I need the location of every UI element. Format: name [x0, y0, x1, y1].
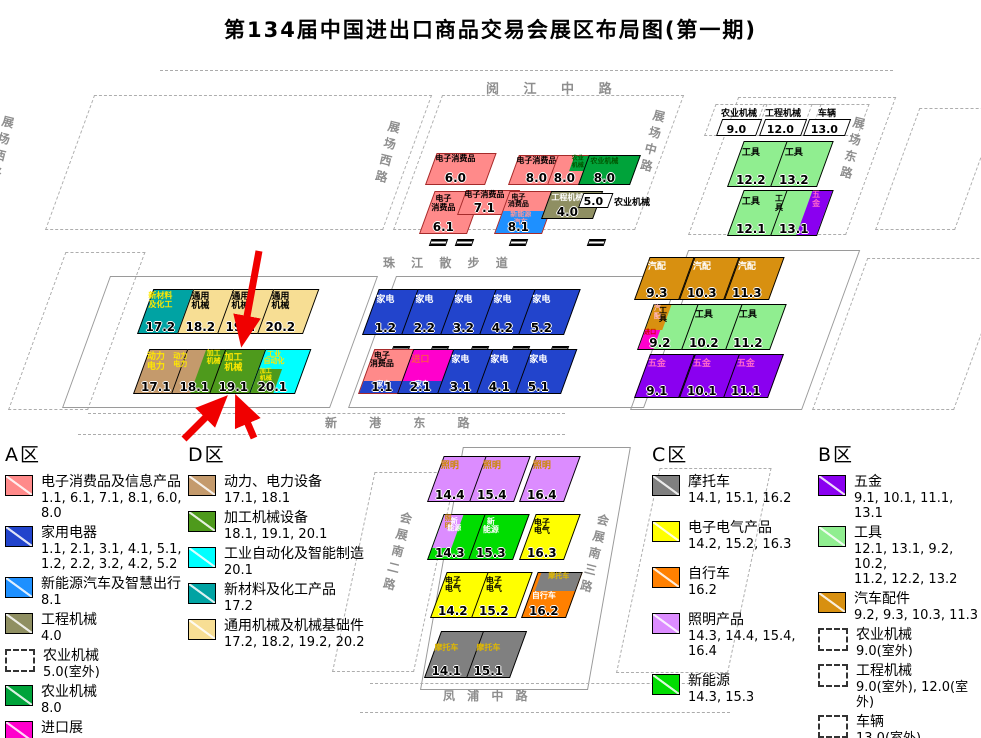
hall-content: 五金11.1 — [724, 355, 767, 397]
street-line — [78, 434, 565, 435]
hall-number: 19.2 — [218, 321, 262, 333]
hall-number: 13.1 — [771, 223, 816, 235]
legend-item-text: 车辆13.0(室外) — [856, 714, 921, 738]
hall-9.0: 9.0 — [716, 119, 762, 136]
hall-label: 汽配 — [635, 263, 678, 273]
hall-content: 照明15.4 — [470, 457, 513, 501]
hall-number: 14.2 — [431, 605, 474, 617]
hall-13.2: 工具13.2 — [770, 141, 834, 187]
hall-content: 摩托车15.1 — [467, 632, 509, 677]
legend-item-halls: 17.1, 18.1 — [224, 491, 322, 506]
hall-content: 通用 机械19.2 — [218, 290, 262, 333]
hall-label: 电子 电气 — [472, 577, 515, 594]
road-label: 珠 江 散 步 道 — [383, 254, 514, 271]
hall-label: 自行车 — [522, 592, 565, 601]
hall-number: 15.3 — [469, 547, 512, 559]
hall-5.0: 5.0 — [578, 193, 613, 208]
legend-item-text: 进口展2.1 — [41, 720, 83, 738]
legend-swatch — [188, 475, 216, 496]
hall-content: 电子 电气15.2 — [472, 573, 515, 617]
hall-number: 17.2 — [138, 321, 182, 333]
hall-label: 工具 — [728, 198, 773, 208]
legend-item-text: 农业机械9.0(室外) — [856, 627, 913, 659]
legend-section-C区: C区摩托车14.1, 15.1, 16.2电子电气产品14.2, 15.2, 1… — [652, 440, 817, 719]
hall-content: 12.0 — [760, 120, 800, 135]
hall-number: 5.1 — [516, 381, 560, 393]
hall-number: 6.0 — [426, 172, 484, 184]
hall-content: 8.0 — [548, 156, 580, 184]
hall-content: 新材料 及化工17.2 — [138, 290, 182, 333]
hall-number: 10.2 — [682, 337, 725, 349]
hall-number: 9.2 — [638, 337, 681, 349]
legend-item: 工程机械4.0 — [5, 612, 187, 644]
legend-item-text: 电子消费品及信息产品1.1, 6.1, 7.1, 8.1, 6.0, 8.0 — [41, 474, 187, 521]
legend-item-halls: 14.3, 14.4, 15.4, 16.4 — [688, 629, 817, 659]
hall-number: 14.1 — [425, 665, 467, 677]
hall-label: 通用 机械 — [178, 293, 222, 312]
hall-number: 9.1 — [635, 385, 678, 397]
hall-content: 工具11.2 — [726, 305, 769, 349]
hall-number: 5.2 — [519, 322, 563, 334]
hall-6.0: 电子消费品6.0 — [425, 153, 497, 185]
legend-swatch-outdoor — [818, 715, 848, 738]
hall-label: 家电 — [516, 356, 560, 366]
hall-number: 2.1 — [398, 381, 442, 393]
road-label: 会展南三路 — [576, 512, 613, 599]
hall-16.3: 电子 电气16.3 — [519, 514, 581, 560]
hall-label: 家电 — [441, 296, 485, 306]
legend-section-title: C区 — [652, 440, 817, 467]
hall-5.1: 家电5.1 — [515, 349, 577, 394]
legend-item-text: 工具12.1, 13.1, 9.2, 10.2, 11.2, 12.2, 13.… — [854, 525, 980, 587]
hall-11.2: 工具11.2 — [725, 304, 787, 350]
hall-content: 电子消费品6.0 — [426, 154, 484, 184]
legend-item: 农业机械5.0(室外) — [5, 648, 187, 680]
hall-content: 家电5.1 — [516, 350, 560, 393]
legend-item-halls: 18.1, 19.1, 20.1 — [224, 527, 327, 542]
hall-content: 农业机械8.0 — [579, 156, 629, 184]
hall-label: 家电 — [402, 296, 446, 306]
hall-number: 15.2 — [472, 605, 515, 617]
hall-number: 11.1 — [724, 385, 767, 397]
hall-content: 电子 电气16.3 — [520, 515, 563, 559]
hall-number: 20.2 — [258, 321, 302, 333]
hall-content: 工业 自动化20.1 — [250, 350, 294, 393]
legend-item: 新材料及化工产品17.2 — [188, 582, 388, 614]
hall-label: 家电 — [477, 356, 521, 366]
legend-item-halls: 16.2 — [688, 583, 730, 598]
legend-swatch — [652, 521, 680, 542]
hall-content: 家电5.2 — [519, 290, 563, 334]
hall-label: 工业 自动化 — [264, 351, 285, 366]
hall-content: 工具10.2 — [682, 305, 725, 349]
legend-item: 进口展2.1 — [5, 720, 187, 738]
hall-label: 家电 — [438, 356, 482, 366]
hall-side-label: 农业机械 — [614, 195, 650, 208]
legend-item: 加工机械设备18.1, 19.1, 20.1 — [188, 510, 388, 542]
legend-item-text: 加工机械设备18.1, 19.1, 20.1 — [224, 510, 327, 542]
legend-item-halls: 8.1 — [41, 593, 181, 608]
hall-label: 照明 — [470, 462, 513, 472]
legend-item-label: 摩托车 — [688, 474, 791, 491]
hall-number: 13.2 — [771, 174, 816, 186]
hall-content: 照明14.4 — [428, 457, 471, 501]
hall-label: 通用 机械 — [258, 293, 302, 312]
legend-item: 照明产品14.3, 14.4, 15.4, 16.4 — [652, 612, 817, 659]
hall-content: 五金9.1 — [635, 355, 678, 397]
legend-swatch — [188, 619, 216, 640]
hall-content: 家电4.2 — [480, 290, 524, 334]
hall-label: 工具 — [726, 311, 769, 321]
legend-swatch — [652, 674, 680, 695]
street-block — [812, 258, 981, 410]
hall-content: 13.0 — [804, 120, 844, 135]
legend-item-label: 农业机械 — [41, 684, 97, 701]
legend-swatch — [188, 583, 216, 604]
hall-12.0: 12.0 — [759, 119, 807, 136]
hall-label: 汽配 — [680, 263, 723, 273]
legend-item-text: 农业机械8.0 — [41, 684, 97, 716]
legend-item-label: 工程机械 — [856, 663, 980, 680]
hall-content: 工具12.2 — [728, 142, 773, 186]
legend-swatch — [188, 511, 216, 532]
legend-swatch — [652, 475, 680, 496]
street-line — [160, 70, 893, 71]
legend-swatch-outdoor — [818, 628, 848, 651]
legend-item-halls: 14.3, 15.3 — [688, 690, 754, 705]
hall-content: 汽配10.3 — [680, 258, 723, 299]
hall-number: 16.2 — [522, 605, 565, 617]
street-block — [875, 108, 981, 230]
hall-label: 五金 — [635, 360, 678, 370]
hall-number: 10.3 — [680, 287, 723, 299]
hall-number: 16.4 — [520, 489, 563, 501]
hall-label: 新材料 及化工 — [138, 292, 182, 309]
hall-label: 工具 — [682, 311, 725, 321]
hall-label: 摩托车 — [467, 644, 509, 653]
hall-content: 摩托车14.1 — [425, 632, 467, 677]
legend-item-text: 新材料及化工产品17.2 — [224, 582, 336, 614]
legend-item-label: 电子消费品及信息产品 — [41, 474, 187, 491]
hall-label: 五金 — [724, 360, 767, 370]
legend-item-label: 加工机械设备 — [224, 510, 327, 527]
hall-number: 13.0 — [804, 124, 844, 135]
legend-item-label: 通用机械及机械基础件 — [224, 618, 365, 635]
hall-15.1: 摩托车15.1 — [466, 631, 527, 678]
hall-label: 工 具 — [775, 195, 783, 212]
hall-16.2: 摩托车自行车16.2 — [521, 572, 583, 618]
legend-item: 电子消费品及信息产品1.1, 6.1, 7.1, 8.1, 6.0, 8.0 — [5, 474, 187, 521]
gate-marker — [455, 239, 475, 246]
legend-item-label: 农业机械 — [43, 648, 100, 665]
hall-content: 新 能源15.3 — [469, 515, 512, 559]
legend-item-text: 新能源汽车及智慧出行8.1 — [41, 576, 181, 608]
legend-swatch — [5, 475, 33, 496]
legend-item: 摩托车14.1, 15.1, 16.2 — [652, 474, 817, 506]
hall-11.3: 汽配11.3 — [724, 257, 785, 300]
legend-item-label: 电子电气产品 — [688, 520, 791, 537]
hall-content: 家电4.1 — [477, 350, 521, 393]
hall-label: 五金 — [680, 360, 723, 370]
legend-item-halls: 14.1, 15.1, 16.2 — [688, 491, 791, 506]
legend-item: 农业机械9.0(室外) — [818, 627, 980, 659]
hall-content: 家电1.2 — [363, 290, 407, 334]
hall-content: 自行车16.2 — [522, 573, 565, 617]
road-label: 凤 浦 中 路 — [443, 687, 532, 704]
street-block — [45, 95, 432, 230]
hall-content: 工 具13.1 — [771, 191, 816, 235]
gate-marker — [587, 239, 607, 246]
legend-item: 新能源14.3, 15.3 — [652, 673, 817, 705]
street-block — [8, 252, 146, 410]
legend-item-text: 工程机械9.0(室外), 12.0(室外) — [856, 663, 980, 710]
legend-swatch — [818, 526, 846, 547]
hall-16.4: 照明16.4 — [519, 456, 581, 502]
legend-item-text: 通用机械及机械基础件17.2, 18.2, 19.2, 20.2 — [224, 618, 365, 650]
legend-item-halls: 13.0(室外) — [856, 731, 921, 738]
hall-label: 动力 电力 — [134, 353, 177, 372]
hall-content: 工具13.2 — [771, 142, 816, 186]
hall-content: 通用 机械20.2 — [258, 290, 302, 333]
hall-content: 电子 电气14.2 — [431, 573, 474, 617]
legend-item-label: 家用电器 — [41, 525, 182, 542]
hall-number: 8.1 — [495, 221, 541, 233]
hall-label: 动力 电力 — [173, 353, 187, 368]
legend-item-text: 农业机械5.0(室外) — [43, 648, 100, 680]
legend-item-halls: 14.2, 15.2, 16.3 — [688, 537, 791, 552]
legend-item-text: 动力、电力设备17.1, 18.1 — [224, 474, 322, 506]
legend-item-halls: 4.0 — [41, 629, 97, 644]
hall-number: 15.1 — [467, 665, 509, 677]
hall-content: 进口2.1 — [398, 350, 442, 393]
hall-number: 9.3 — [635, 287, 678, 299]
legend-item: 自行车16.2 — [652, 566, 817, 598]
legend-swatch-outdoor — [5, 649, 35, 672]
hall-8.0c: 农业机械8.0 — [578, 155, 641, 185]
legend-item-text: 工业自动化及智能制造20.1 — [224, 546, 364, 578]
legend-item-label: 五金 — [854, 474, 980, 491]
legend-swatch — [652, 567, 680, 588]
hall-label: 家电 — [480, 296, 524, 306]
legend-item-halls: 20.1 — [224, 563, 364, 578]
legend-swatch — [5, 577, 33, 598]
hall-label: 家电 — [363, 296, 407, 306]
hall-content: 照明16.4 — [520, 457, 563, 501]
legend-item-label: 汽车配件 — [854, 591, 978, 608]
legend-item: 工业自动化及智能制造20.1 — [188, 546, 388, 578]
legend-item: 工具12.1, 13.1, 9.2, 10.2, 11.2, 12.2, 13.… — [818, 525, 980, 587]
road-label: 阅 江 中 路 — [486, 78, 622, 97]
legend-item-text: 工程机械4.0 — [41, 612, 97, 644]
legend-item-label: 自行车 — [688, 566, 730, 583]
legend-item: 动力、电力设备17.1, 18.1 — [188, 474, 388, 506]
hall-label: 通用 机械 — [218, 293, 262, 312]
hall-content: 动力 电力17.1 — [134, 350, 177, 393]
legend-item: 家用电器1.1, 2.1, 3.1, 4.1, 5.1, 1.2, 2.2, 3… — [5, 525, 187, 572]
legend-item-label: 新能源汽车及智慧出行 — [41, 576, 181, 593]
hall-content: 家电2.2 — [402, 290, 446, 334]
hall-number: 16.3 — [520, 547, 563, 559]
hall-13.0: 13.0 — [803, 119, 851, 136]
legend-section-title: D区 — [188, 440, 388, 467]
hall-20.1: 加工 机械工业 自动化20.1 — [249, 349, 311, 394]
hall-number: 11.2 — [726, 337, 769, 349]
legend-item-halls: 17.2 — [224, 599, 336, 614]
hall-label: 进口 — [398, 356, 442, 366]
hall-number: 12.1 — [728, 223, 773, 235]
legend-section-A区: A区电子消费品及信息产品1.1, 6.1, 7.1, 8.1, 6.0, 8.0… — [5, 440, 187, 738]
legend-item: 新能源汽车及智慧出行8.1 — [5, 576, 187, 608]
legend-item-halls: 1.1, 2.1, 3.1, 4.1, 5.1, 1.2, 2.2, 3.2, … — [41, 542, 182, 572]
legend-swatch — [818, 592, 846, 613]
hall-label: 新 能源 — [447, 518, 461, 533]
legend-item-text: 自行车16.2 — [688, 566, 730, 598]
legend-section-B区: B区五金9.1, 10.1, 11.1, 13.1工具12.1, 13.1, 9… — [818, 440, 980, 738]
legend-item-halls: 1.1, 6.1, 7.1, 8.1, 6.0, 8.0 — [41, 491, 187, 521]
road-label: 展场中路 — [636, 108, 669, 178]
hall-label: 照明 — [428, 462, 471, 472]
hall-label: 汽配 — [725, 263, 768, 273]
hall-label: 新 能源 — [469, 518, 512, 535]
canton-fair-layout-map: 第134届中国进出口商品交易会展区布局图(第一期) 阅 江 中 路展场西路展场西… — [0, 0, 981, 738]
hall-content: 汽配11.3 — [725, 258, 768, 299]
hall-content: 工 具9.2 — [638, 305, 681, 349]
legend-item-label: 照明产品 — [688, 612, 817, 629]
hall-label: 工具 — [728, 149, 773, 159]
hall-label: 电子消费品 — [426, 155, 484, 164]
legend-item: 农业机械8.0 — [5, 684, 187, 716]
road-label: 展场西路 — [371, 119, 404, 189]
legend-item: 汽车配件9.2, 9.3, 10.3, 11.3 — [818, 591, 980, 623]
hall-label: 工 具 — [659, 307, 667, 324]
legend-item-label: 进口展 — [41, 720, 83, 737]
hall-label: 农业机械 — [579, 158, 629, 166]
hall-number: 14.4 — [428, 489, 471, 501]
legend-swatch — [188, 547, 216, 568]
legend-item-text: 电子电气产品14.2, 15.2, 16.3 — [688, 520, 791, 552]
hall-number: 10.1 — [680, 385, 723, 397]
legend-item: 车辆13.0(室外) — [818, 714, 980, 738]
legend-item-label: 车辆 — [856, 714, 921, 731]
hall-content: 电子 消费品8.1 — [495, 192, 541, 233]
hall-content: 工具12.1 — [728, 191, 773, 235]
legend-item-halls: 9.1, 10.1, 11.1, 13.1 — [854, 491, 980, 521]
legend-item-halls: 8.0 — [41, 701, 97, 716]
legend-item-label: 工程机械 — [41, 612, 97, 629]
hall-number: 12.0 — [760, 124, 800, 135]
legend-section-title: A区 — [5, 440, 187, 467]
legend-item: 工程机械9.0(室外), 12.0(室外) — [818, 663, 980, 710]
hall-number: 12.2 — [728, 174, 773, 186]
hall-content: 汽配9.3 — [635, 258, 678, 299]
hall-number: 5.0 — [579, 196, 607, 207]
legend-swatch — [5, 526, 33, 547]
legend-item-halls: 9.2, 9.3, 10.3, 11.3 — [854, 608, 978, 623]
hall-content: 家电3.1 — [438, 350, 482, 393]
legend-item-halls: 5.0(室外) — [43, 665, 100, 680]
road-label: 展场西路 — [0, 114, 18, 184]
hall-number: 9.0 — [717, 124, 755, 135]
legend-section-D区: D区动力、电力设备17.1, 18.1加工机械设备18.1, 19.1, 20.… — [188, 440, 388, 654]
hall-label: 电子 消费品 — [495, 194, 541, 209]
hall-label: 电子 电气 — [431, 577, 474, 594]
hall-label: 摩托车 — [425, 644, 467, 653]
hall-label: 电子 电气 — [520, 519, 563, 536]
hall-content: 家电3.2 — [441, 290, 485, 334]
legend-swatch — [5, 685, 33, 706]
legend-item-label: 农业机械 — [856, 627, 913, 644]
hall-label: 照明 — [520, 462, 563, 472]
hall-number: 15.4 — [470, 489, 513, 501]
legend-item-halls: 9.0(室外) — [856, 644, 913, 659]
legend-item: 通用机械及机械基础件17.2, 18.2, 19.2, 20.2 — [188, 618, 388, 650]
legend-swatch — [818, 475, 846, 496]
hall-content: 通用 机械18.2 — [178, 290, 222, 333]
legend-item-label: 工具 — [854, 525, 980, 542]
hall-content: 新 能源14.3 — [428, 515, 471, 559]
legend-item-text: 新能源14.3, 15.3 — [688, 673, 754, 705]
hall-number: 14.3 — [428, 547, 471, 559]
hall-label: 家电 — [519, 296, 563, 306]
legend-swatch-outdoor — [818, 664, 848, 687]
legend-swatch — [652, 613, 680, 634]
hall-5.2: 家电5.2 — [518, 289, 581, 335]
gate-marker — [509, 239, 529, 246]
legend-swatch — [5, 613, 33, 634]
legend-item-text: 摩托车14.1, 15.1, 16.2 — [688, 474, 791, 506]
legend-section-title: B区 — [818, 440, 980, 467]
hall-number: 20.1 — [250, 381, 294, 393]
hall-content: 9.0 — [717, 120, 755, 135]
road-label: 新 港 东 路 — [325, 414, 484, 431]
legend-item: 电子电气产品14.2, 15.2, 16.3 — [652, 520, 817, 552]
legend-item-text: 照明产品14.3, 14.4, 15.4, 16.4 — [688, 612, 817, 659]
hall-content: 五金10.1 — [680, 355, 723, 397]
legend-item-text: 汽车配件9.2, 9.3, 10.3, 11.3 — [854, 591, 978, 623]
legend-item-label: 动力、电力设备 — [224, 474, 322, 491]
hall-content: 5.0 — [579, 194, 607, 207]
hall-number: 6.1 — [420, 221, 466, 233]
gate-marker — [429, 239, 449, 246]
legend-item-text: 五金9.1, 10.1, 11.1, 13.1 — [854, 474, 980, 521]
hall-11.1: 五金11.1 — [723, 354, 784, 398]
hall-label: 工具 — [771, 149, 816, 159]
hall-number: 11.3 — [725, 287, 768, 299]
hall-number: 8.0 — [548, 172, 580, 184]
hall-13.1: 五 金工 具13.1 — [770, 190, 834, 236]
legend-swatch — [5, 721, 33, 738]
hall-20.2: 通用 机械20.2 — [257, 289, 319, 334]
legend-item-halls: 9.0(室外), 12.0(室外) — [856, 680, 980, 710]
hall-outdoor-label: 车辆 — [795, 106, 859, 119]
legend-item-text: 家用电器1.1, 2.1, 3.1, 4.1, 5.1, 1.2, 2.2, 3… — [41, 525, 182, 572]
legend-item: 五金9.1, 10.1, 11.1, 13.1 — [818, 474, 980, 521]
hall-number: 18.2 — [178, 321, 222, 333]
legend-item-label: 新材料及化工产品 — [224, 582, 336, 599]
hall-number: 8.0 — [579, 172, 629, 184]
legend-item-halls: 17.2, 18.2, 19.2, 20.2 — [224, 635, 365, 650]
legend-item-label: 工业自动化及智能制造 — [224, 546, 364, 563]
legend-item-label: 新能源 — [688, 673, 754, 690]
legend-item-halls: 12.1, 13.1, 9.2, 10.2, 11.2, 12.2, 13.2 — [854, 542, 980, 587]
